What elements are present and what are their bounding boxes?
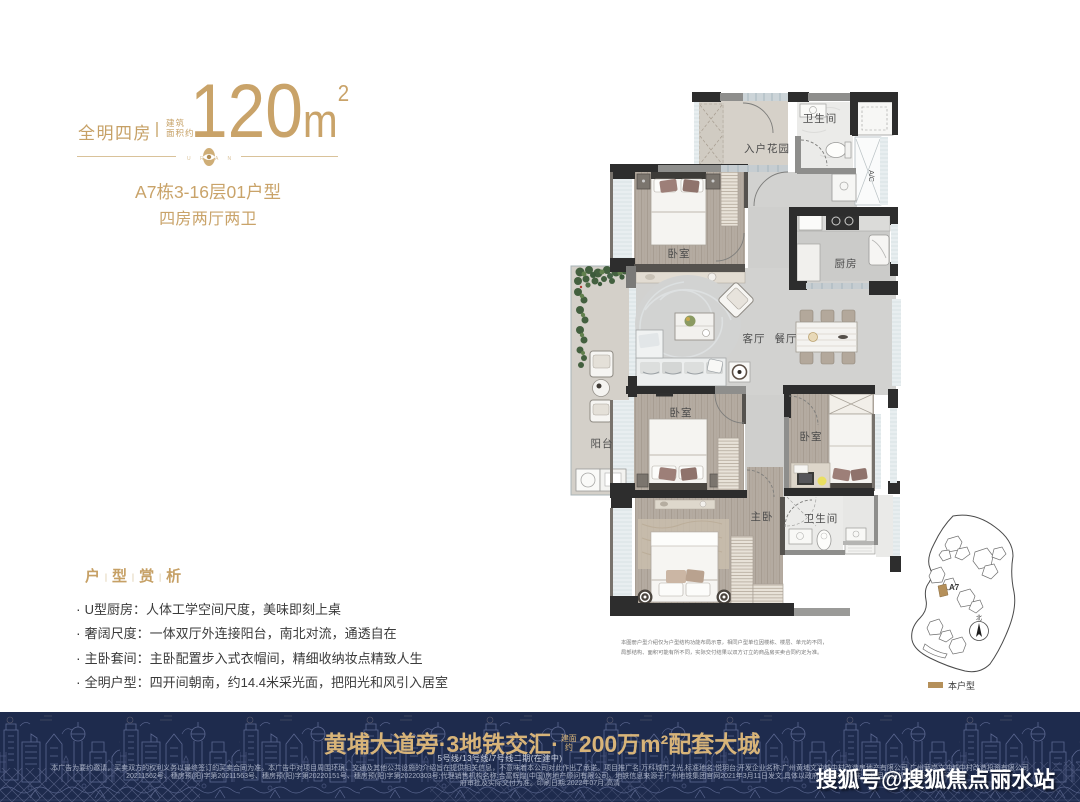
svg-text:北: 北 bbox=[976, 614, 982, 622]
svg-text:A7: A7 bbox=[949, 583, 960, 592]
svg-text:入户花园: 入户花园 bbox=[744, 142, 790, 155]
svg-text:卧室: 卧室 bbox=[670, 406, 693, 419]
svg-text:客厅: 客厅 bbox=[743, 332, 766, 345]
svg-text:主卧: 主卧 bbox=[751, 510, 774, 523]
svg-text:卧室: 卧室 bbox=[800, 430, 823, 443]
svg-text:卧室: 卧室 bbox=[668, 247, 691, 260]
svg-text:厨房: 厨房 bbox=[835, 257, 858, 270]
svg-text:卫生间: 卫生间 bbox=[804, 512, 839, 525]
svg-text:本户型: 本户型 bbox=[948, 680, 975, 691]
svg-text:餐厅: 餐厅 bbox=[775, 332, 798, 345]
svg-text:A/C: A/C bbox=[867, 170, 874, 182]
svg-text:卫生间: 卫生间 bbox=[803, 112, 838, 125]
svg-text:A N: A N bbox=[215, 156, 232, 162]
svg-text:阳台: 阳台 bbox=[591, 437, 614, 450]
